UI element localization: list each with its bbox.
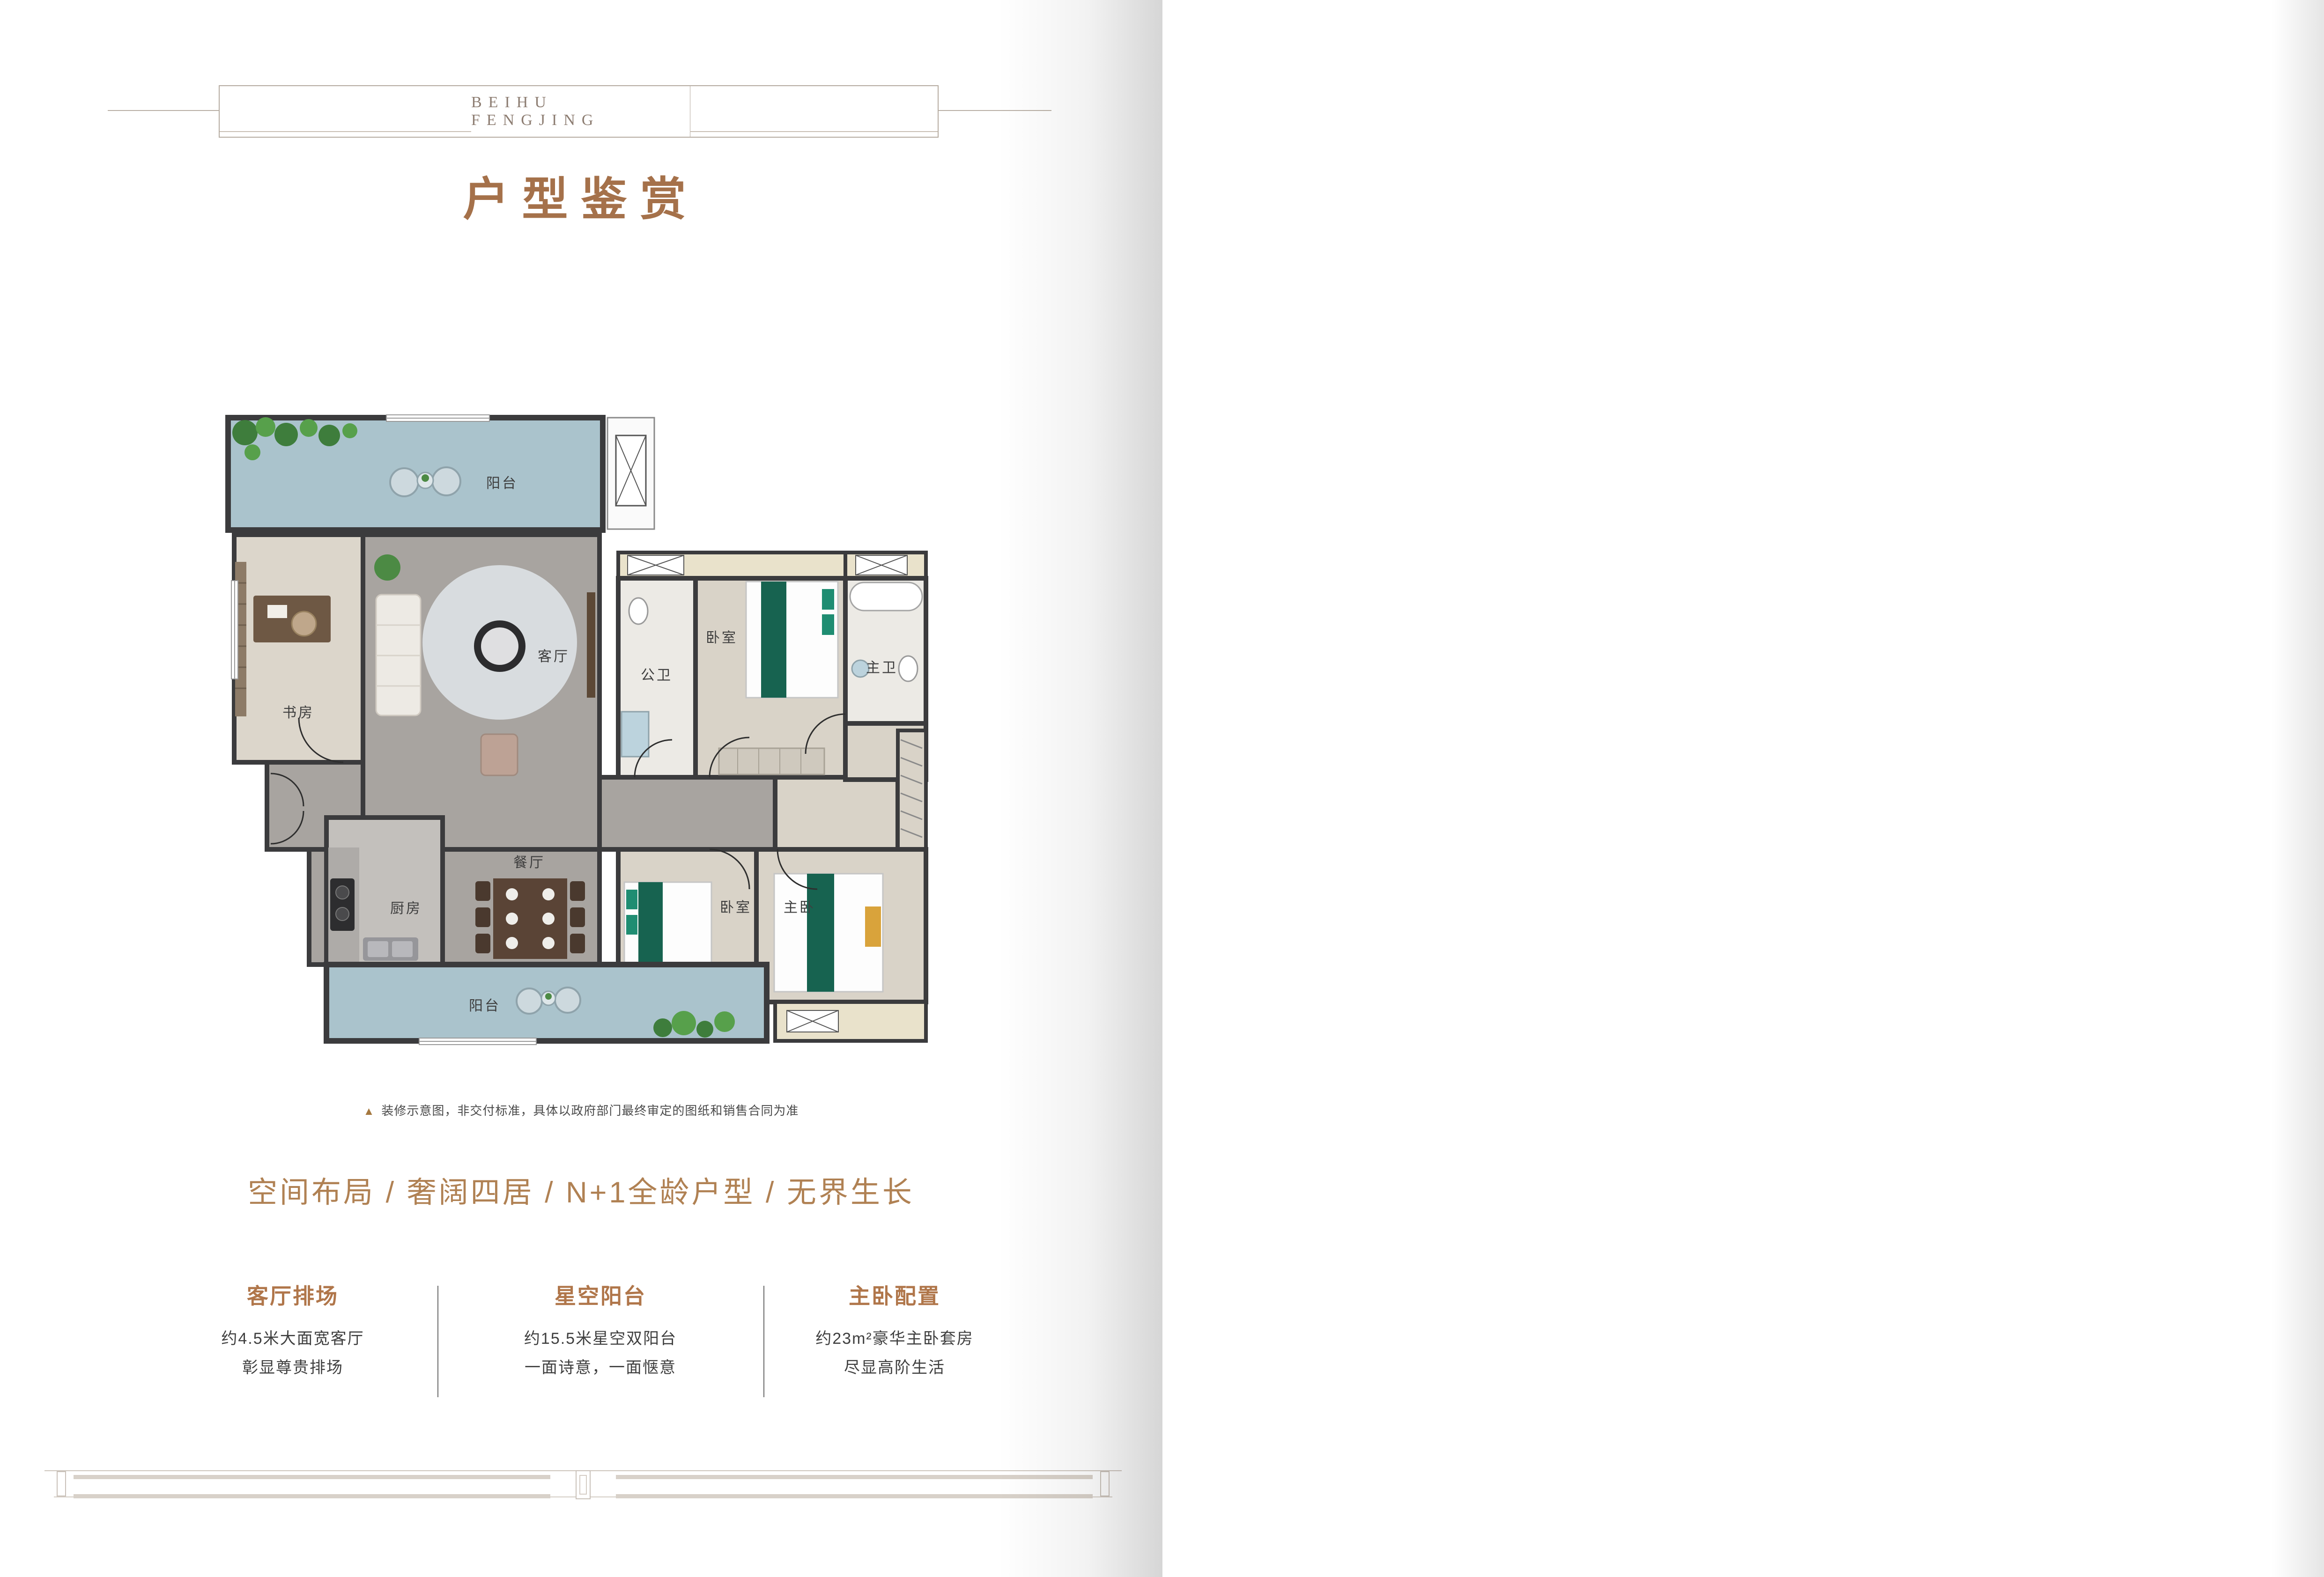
room-label: 客厅 bbox=[538, 649, 570, 664]
disclaimer-text: 装修示意图，非交付标准，具体以政府部门最终审定的图纸和销售合同为准 bbox=[381, 1104, 799, 1118]
header-ornament-left: BEIHU FENGJING bbox=[108, 85, 1051, 138]
tagline: 空间布局 / 奢阔四居 / N+1全龄户型 / 无界生长 bbox=[0, 1169, 1162, 1211]
room-label: 卧室 bbox=[720, 900, 752, 915]
feature-title: 主卧配置 bbox=[763, 1279, 1026, 1310]
triangle-icon: ▲ bbox=[363, 1105, 375, 1118]
room-label: 公卫 bbox=[641, 668, 673, 683]
room-public-bath: 公卫 bbox=[618, 578, 696, 777]
header-frame: BEIHU FENGJING bbox=[219, 85, 939, 138]
room-study: 书房 bbox=[234, 535, 363, 762]
room-label: 主卧 bbox=[784, 900, 815, 915]
room-bedroom-top: 卧室 bbox=[696, 578, 845, 777]
header-frame-divider bbox=[690, 86, 690, 137]
footer-ornament-left bbox=[44, 1470, 1122, 1504]
room-balcony-top: 阳台 bbox=[228, 417, 603, 530]
room-master-bedroom: 主卧 bbox=[756, 849, 926, 1002]
room-kitchen: 厨房 bbox=[326, 818, 443, 965]
feature-balcony: 星空阳台 约15.5米星空双阳台 一面诗意，一面惬意 bbox=[469, 1279, 732, 1382]
room-balcony-bottom: 阳台 bbox=[326, 965, 767, 1041]
page-right: BEIHU FENGJING 建筑 面积 约 142.26m2 3+1房2厅2卫 bbox=[1165, 0, 2324, 1577]
feature-line: 约4.5米大面宽客厅 bbox=[162, 1324, 424, 1353]
feature-columns: 客厅排场 约4.5米大面宽客厅 彰显尊贵排场 星空阳台 约15.5米星空双阳台 … bbox=[0, 1279, 1162, 1401]
feature-line: 约15.5米星空双阳台 bbox=[469, 1324, 732, 1353]
feature-line: 一面诗意，一面惬意 bbox=[469, 1353, 732, 1382]
room-label: 卧室 bbox=[706, 630, 738, 646]
room-living: 客厅 bbox=[363, 535, 600, 849]
room-master-bath: 主卫 bbox=[845, 578, 926, 723]
feature-line: 彰显尊贵排场 bbox=[162, 1353, 424, 1382]
closet-strip bbox=[898, 730, 926, 856]
brand-wordmark: BEIHU FENGJING bbox=[471, 86, 690, 137]
room-label: 餐厅 bbox=[513, 855, 545, 870]
corridor bbox=[600, 777, 775, 849]
ac-platform-strips bbox=[618, 553, 926, 578]
feature-title: 星空阳台 bbox=[469, 1279, 732, 1310]
room-label: 主卫 bbox=[866, 660, 898, 676]
feature-living: 客厅排场 约4.5米大面宽客厅 彰显尊贵排场 bbox=[162, 1279, 424, 1382]
room-label: 阳台 bbox=[486, 476, 518, 491]
ac-shaft-top bbox=[607, 418, 654, 529]
feature-line: 尽显高阶生活 bbox=[763, 1353, 1026, 1382]
feature-line: 约23m²豪华主卧套房 bbox=[763, 1324, 1026, 1353]
plan-disclaimer: ▲装修示意图，非交付标准，具体以政府部门最终审定的图纸和销售合同为准 bbox=[0, 1101, 1162, 1119]
room-label: 阳台 bbox=[469, 998, 501, 1014]
feature-divider bbox=[437, 1286, 438, 1397]
page-left: BEIHU FENGJING 户型鉴赏 阳台 bbox=[0, 0, 1162, 1577]
rendered-floorplan: 阳台 书房 bbox=[222, 412, 932, 1046]
feature-master: 主卧配置 约23m²豪华主卧套房 尽显高阶生活 bbox=[763, 1279, 1026, 1382]
suite-hall bbox=[775, 777, 898, 849]
ac-platform-bottom bbox=[775, 1002, 926, 1041]
page-title: 户型鉴赏 bbox=[0, 162, 1162, 228]
room-label: 厨房 bbox=[390, 901, 422, 916]
feature-title: 客厅排场 bbox=[162, 1279, 424, 1310]
